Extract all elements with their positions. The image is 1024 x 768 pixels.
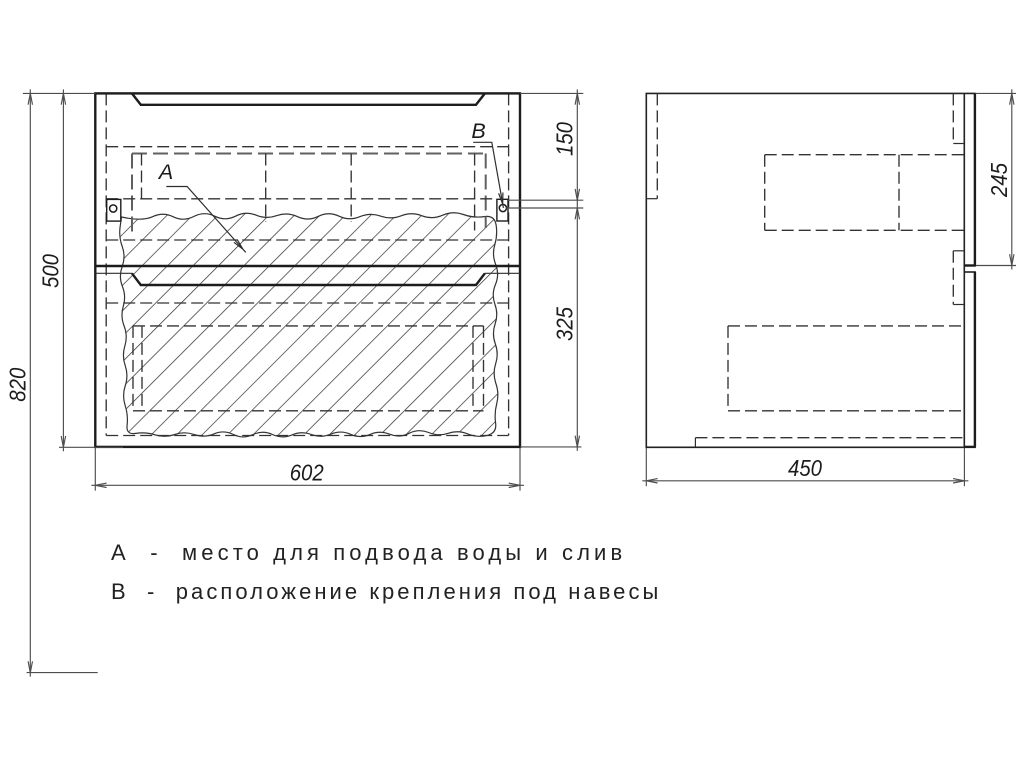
svg-text:В - расположение крепления п: В - расположение крепления под навесы	[111, 579, 661, 604]
svg-text:A: A	[157, 160, 173, 184]
svg-text:500: 500	[37, 254, 63, 288]
svg-text:В: В	[471, 119, 485, 143]
svg-text:602: 602	[290, 460, 324, 486]
svg-text:150: 150	[551, 122, 577, 156]
svg-text:245: 245	[986, 163, 1012, 198]
svg-text:А - место для подвода воды и: А - место для подвода воды и слив	[111, 540, 626, 565]
svg-text:325: 325	[551, 307, 577, 341]
svg-text:820: 820	[5, 368, 31, 402]
svg-text:450: 450	[788, 455, 822, 481]
